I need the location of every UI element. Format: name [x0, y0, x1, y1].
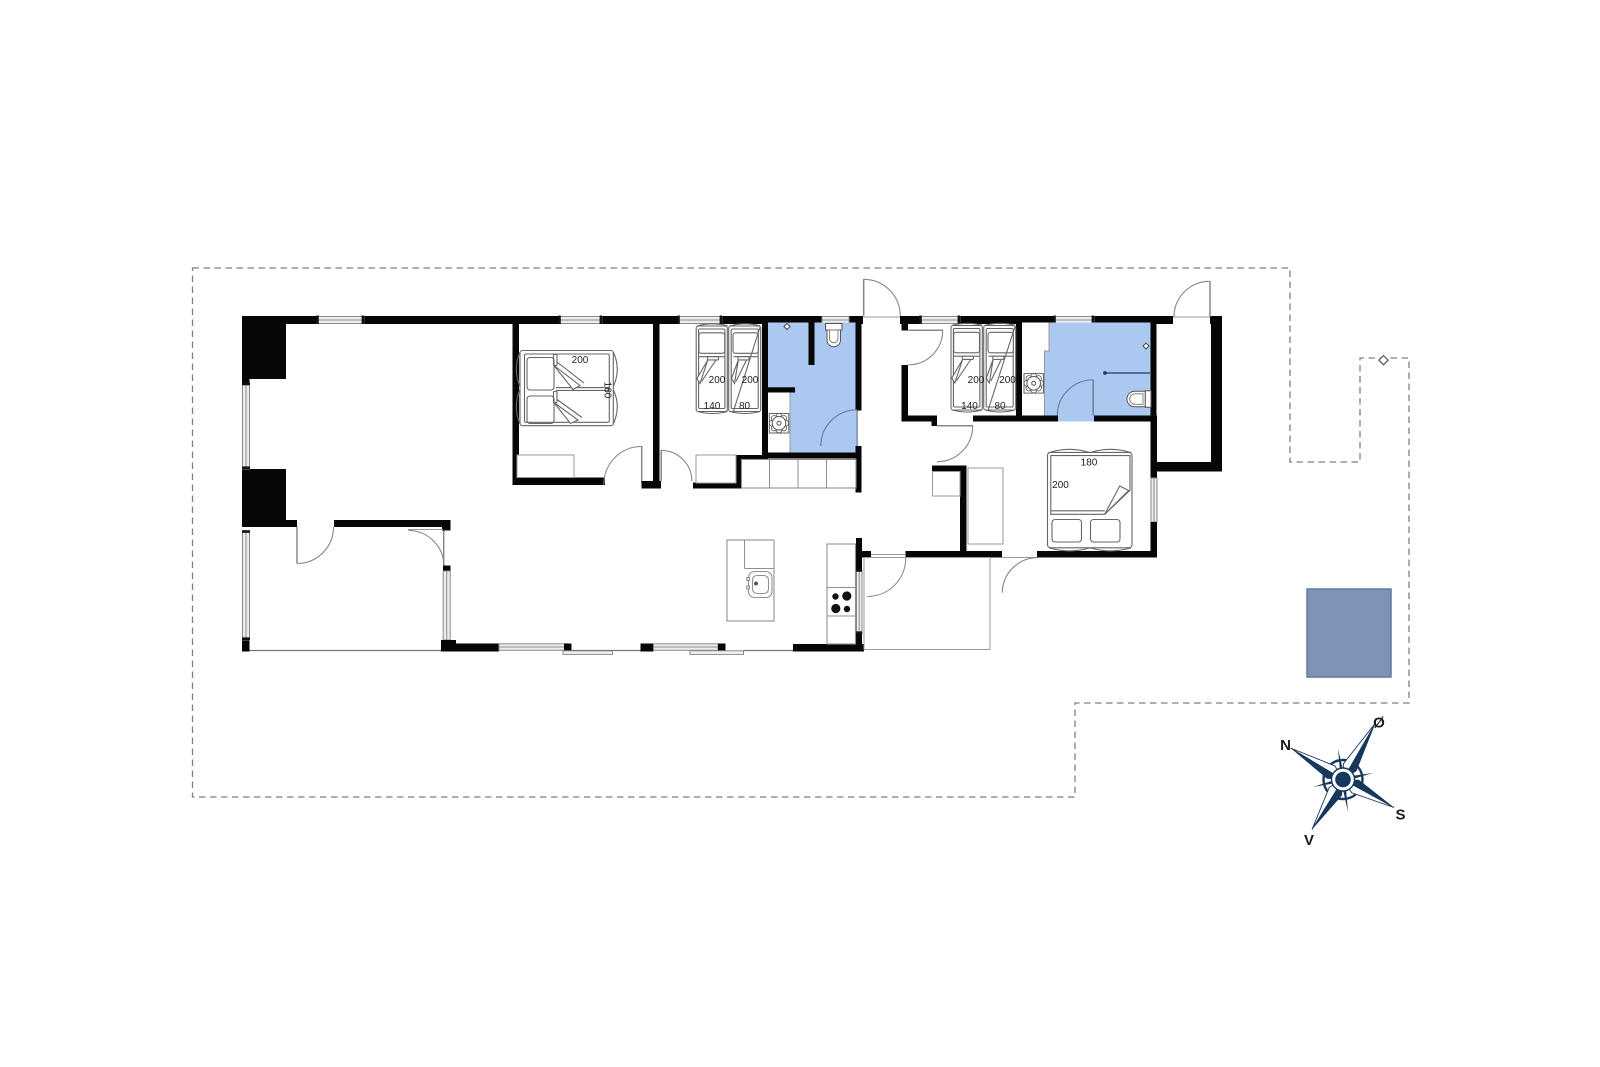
svg-text:S: S: [1395, 807, 1405, 824]
svg-text:200: 200: [968, 375, 985, 386]
svg-text:140: 140: [704, 401, 721, 412]
svg-text:200: 200: [999, 375, 1016, 386]
svg-text:Ø: Ø: [1373, 715, 1385, 732]
svg-text:180: 180: [1081, 458, 1098, 469]
svg-text:140: 140: [961, 401, 978, 412]
svg-text:80: 80: [994, 401, 1006, 412]
svg-text:200: 200: [1052, 480, 1069, 491]
svg-text:200: 200: [742, 375, 759, 386]
svg-text:200: 200: [709, 375, 726, 386]
svg-text:V: V: [1304, 832, 1314, 849]
svg-text:N: N: [1280, 737, 1291, 754]
svg-text:200: 200: [572, 355, 589, 366]
svg-text:160: 160: [602, 382, 613, 399]
svg-text:80: 80: [739, 401, 751, 412]
